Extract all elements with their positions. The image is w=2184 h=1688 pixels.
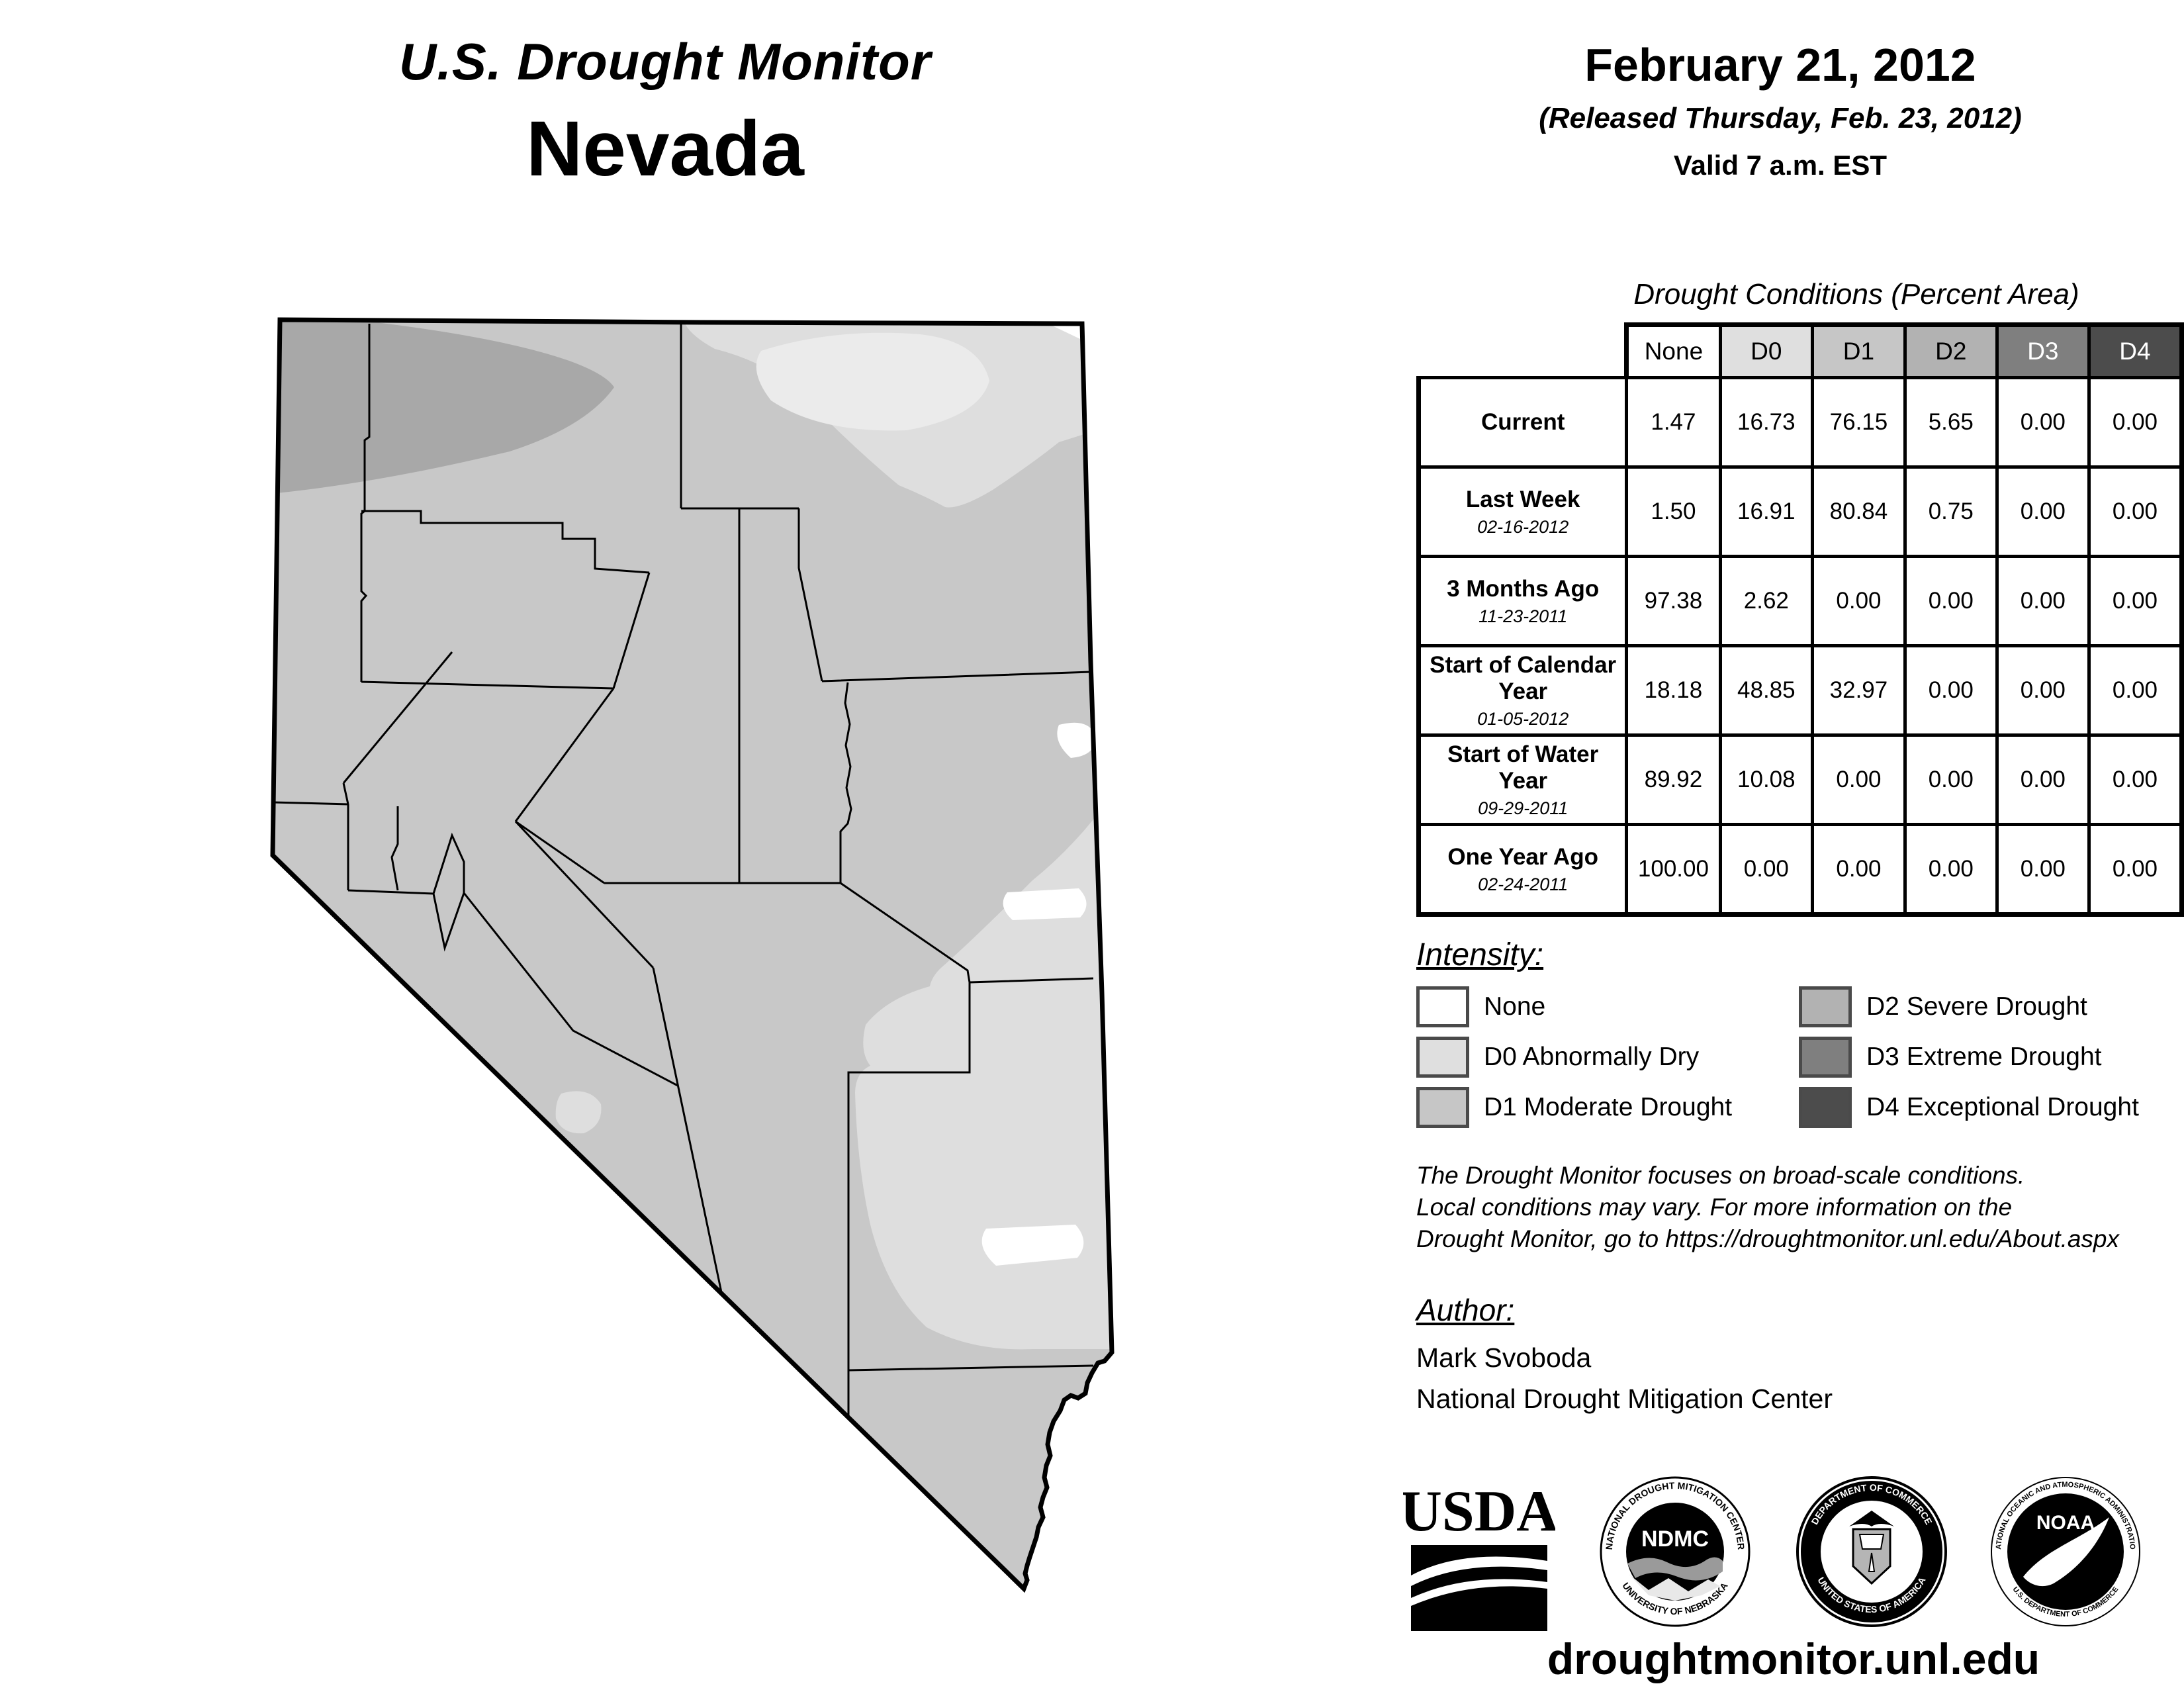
- table-row: Current 1.47 16.73 76.15 5.65 0.00 0.00: [1419, 378, 2182, 467]
- cell-value: 0.00: [1813, 735, 1905, 825]
- legend-item-d2: D2 Severe Drought: [1799, 988, 2183, 1026]
- cell-value: 0.00: [2089, 378, 2181, 467]
- row-label: Start of Water Year: [1421, 741, 1625, 794]
- noaa-logo: NATIONAL OCEANIC AND ATMOSPHERIC ADMINIS…: [1989, 1475, 2142, 1628]
- cell-value: 5.65: [1905, 378, 1997, 467]
- cell-value: 0.00: [1905, 735, 1997, 825]
- table-row: 3 Months Ago 11-23-2011 97.38 2.62 0.00 …: [1419, 557, 2182, 646]
- cell-value: 0.75: [1905, 467, 1997, 557]
- cell-value: 0.00: [1813, 825, 1905, 915]
- legend-label: D4 Exceptional Drought: [1866, 1093, 2139, 1122]
- row-label: Last Week: [1421, 487, 1625, 513]
- drought-conditions-table: None D0 D1 D2 D3 D4 Current 1.47 16.73 7…: [1416, 322, 2184, 917]
- col-header-d0: D0: [1720, 325, 1813, 378]
- table-title: Drought Conditions (Percent Area): [1489, 278, 2184, 311]
- cell-value: 0.00: [1997, 646, 2089, 735]
- cell-value: 80.84: [1813, 467, 1905, 557]
- footer-url: droughtmonitor.unl.edu: [1416, 1634, 2171, 1684]
- cell-value: 0.00: [1905, 646, 1997, 735]
- row-date: 11-23-2011: [1421, 606, 1625, 627]
- table-row: One Year Ago 02-24-2011 100.00 0.00 0.00…: [1419, 825, 2182, 915]
- ndmc-logo: NATIONAL DROUGHT MITIGATION CENTER UNIVE…: [1598, 1475, 1752, 1628]
- drought-monitor-report: { "header": { "title": "U.S. Drought Mon…: [0, 0, 2184, 1688]
- legend-swatch-d4: [1799, 1087, 1852, 1128]
- cell-value: 0.00: [2089, 735, 2181, 825]
- cell-value: 0.00: [1720, 825, 1813, 915]
- row-label: 3 Months Ago: [1421, 576, 1625, 602]
- disclaimer-line: The Drought Monitor focuses on broad-sca…: [1416, 1160, 2184, 1192]
- cell-value: 0.00: [2089, 467, 2181, 557]
- legend-item-d0: D0 Abnormally Dry: [1416, 1038, 1787, 1076]
- table-header-row: None D0 D1 D2 D3 D4: [1419, 325, 2182, 378]
- col-header-none: None: [1627, 325, 1720, 378]
- cell-value: 1.47: [1627, 378, 1720, 467]
- cell-value: 0.00: [2089, 557, 2181, 646]
- col-header-d2: D2: [1905, 325, 1997, 378]
- cell-value: 0.00: [1997, 467, 2089, 557]
- usda-logo: USDA: [1403, 1476, 1555, 1648]
- legend-swatch-d2: [1799, 986, 1852, 1027]
- cell-value: 97.38: [1627, 557, 1720, 646]
- table-corner-cell: [1419, 325, 1627, 378]
- noaa-logo-text: NOAA: [2036, 1512, 2095, 1534]
- legend-item-d3: D3 Extreme Drought: [1799, 1038, 2183, 1076]
- doc-ship: [1860, 1534, 1884, 1549]
- legend-label: D0 Abnormally Dry: [1484, 1043, 1699, 1072]
- col-header-d3: D3: [1997, 325, 2089, 378]
- disclaimer: The Drought Monitor focuses on broad-sca…: [1416, 1160, 2184, 1255]
- legend-item-none: None: [1416, 988, 1787, 1026]
- cell-value: 0.00: [2089, 646, 2181, 735]
- cell-value: 18.18: [1627, 646, 1720, 735]
- row-label: Current: [1421, 409, 1625, 436]
- author-heading: Author:: [1416, 1292, 1514, 1328]
- cell-value: 76.15: [1813, 378, 1905, 467]
- table-row: Last Week 02-16-2012 1.50 16.91 80.84 0.…: [1419, 467, 2182, 557]
- cell-value: 0.00: [1905, 825, 1997, 915]
- table-row: Start of Water Year 09-29-2011 89.92 10.…: [1419, 735, 2182, 825]
- cell-value: 0.00: [2089, 825, 2181, 915]
- cell-value: 10.08: [1720, 735, 1813, 825]
- row-date: 01-05-2012: [1421, 709, 1625, 729]
- table-row: Start of Calendar Year 01-05-2012 18.18 …: [1419, 646, 2182, 735]
- row-date: 09-29-2011: [1421, 798, 1625, 819]
- legend-label: D3 Extreme Drought: [1866, 1043, 2101, 1072]
- legend-label: D2 Severe Drought: [1866, 992, 2087, 1021]
- row-date: 02-16-2012: [1421, 517, 1625, 538]
- cell-value: 1.50: [1627, 467, 1720, 557]
- row-date: 02-24-2011: [1421, 874, 1625, 895]
- legend-label: None: [1484, 992, 1545, 1021]
- cell-value: 89.92: [1627, 735, 1720, 825]
- cell-value: 2.62: [1720, 557, 1813, 646]
- author-org: National Drought Mitigation Center: [1416, 1383, 1833, 1415]
- cell-value: 0.00: [1905, 557, 1997, 646]
- cell-value: 16.73: [1720, 378, 1813, 467]
- commerce-logo: DEPARTMENT OF COMMERCE UNITED STATES OF …: [1795, 1475, 1948, 1628]
- row-label: Start of Calendar Year: [1421, 652, 1625, 705]
- ndmc-logo-text: NDMC: [1641, 1526, 1709, 1552]
- usda-logo-text: USDA: [1403, 1479, 1555, 1544]
- cell-value: 0.00: [1997, 825, 2089, 915]
- cell-value: 0.00: [1997, 378, 2089, 467]
- col-header-d4: D4: [2089, 325, 2181, 378]
- legend-swatch-none: [1416, 986, 1469, 1027]
- cell-value: 32.97: [1813, 646, 1905, 735]
- map-region-none-east-2: [1003, 888, 1087, 920]
- col-header-d1: D1: [1813, 325, 1905, 378]
- cell-value: 48.85: [1720, 646, 1813, 735]
- legend-swatch-d1: [1416, 1087, 1469, 1128]
- legend-swatch-d0: [1416, 1037, 1469, 1078]
- cell-value: 16.91: [1720, 467, 1813, 557]
- legend-title: Intensity:: [1416, 937, 1543, 973]
- legend-swatch-d3: [1799, 1037, 1852, 1078]
- disclaimer-line: Drought Monitor, go to https://droughtmo…: [1416, 1223, 2184, 1255]
- legend-label: D1 Moderate Drought: [1484, 1093, 1732, 1122]
- disclaimer-line: Local conditions may vary. For more info…: [1416, 1192, 2184, 1223]
- row-label: One Year Ago: [1421, 844, 1625, 870]
- cell-value: 0.00: [1997, 557, 2089, 646]
- legend-item-d1: D1 Moderate Drought: [1416, 1088, 1787, 1127]
- author-name: Mark Svoboda: [1416, 1342, 1591, 1374]
- cell-value: 100.00: [1627, 825, 1720, 915]
- cell-value: 0.00: [1997, 735, 2089, 825]
- cell-value: 0.00: [1813, 557, 1905, 646]
- legend-item-d4: D4 Exceptional Drought: [1799, 1088, 2183, 1127]
